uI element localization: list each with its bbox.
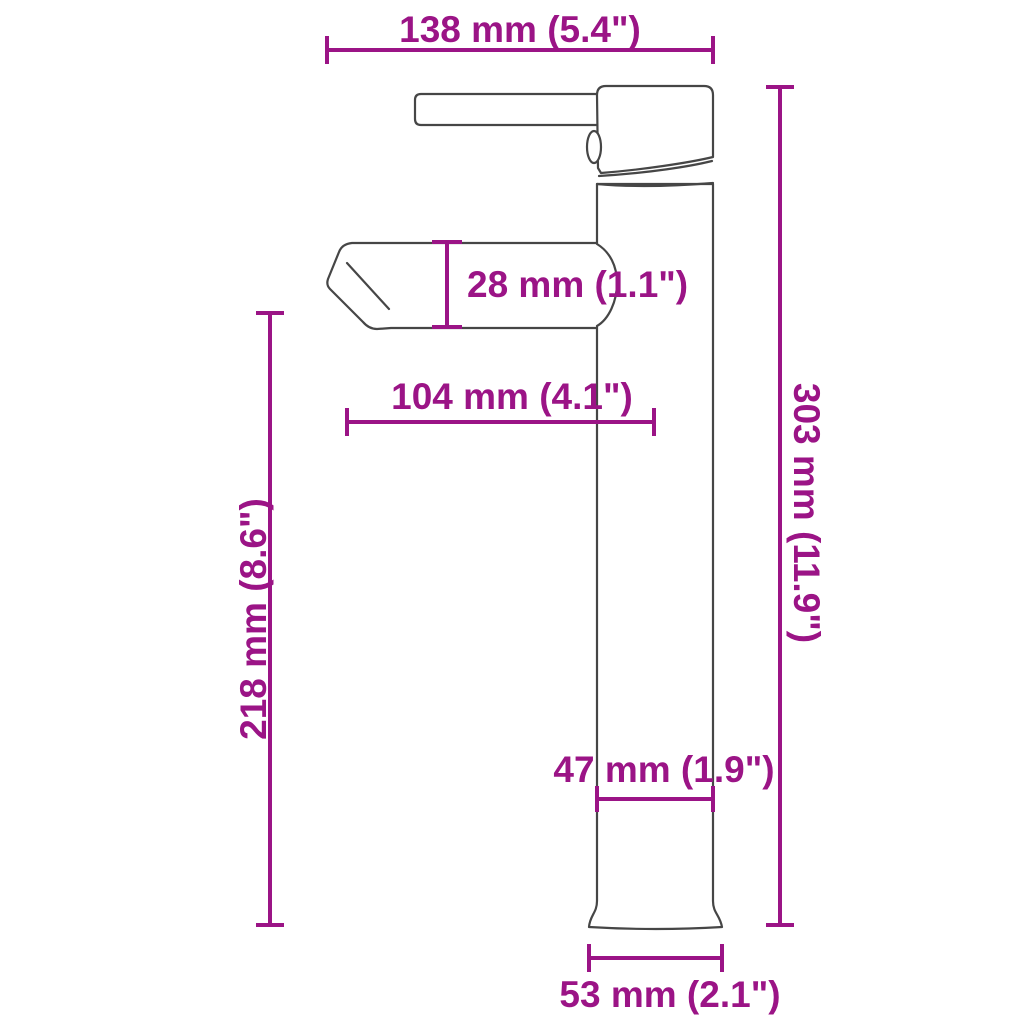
dimension-line: [589, 944, 722, 972]
aerator-seam-line: [347, 263, 389, 309]
dimension-spout-clearance: 218 mm (8.6"): [233, 313, 284, 925]
dimension-label-body-width: 47 mm (1.9"): [553, 749, 774, 790]
dimension-label-base-width: 53 mm (2.1"): [559, 974, 780, 1015]
dimension-label-spout-reach: 104 mm (4.1"): [391, 376, 633, 417]
faucet-dimension-diagram: 138 mm (5.4") 28 mm (1.1") 104 mm (4.1")…: [0, 0, 1024, 1024]
mixer-head: [597, 86, 713, 173]
dimension-spout-reach: 104 mm (4.1"): [347, 376, 654, 436]
set-screw-icon: [587, 131, 601, 163]
dimension-label-spout-clearance: 218 mm (8.6"): [233, 498, 274, 740]
dimension-spout-height: 28 mm (1.1"): [432, 242, 688, 327]
dimension-label-total-height: 303 mm (11.9"): [786, 383, 827, 643]
dimension-line: [432, 242, 462, 327]
dimension-label-overall-depth: 138 mm (5.4"): [399, 9, 641, 50]
handle-lever: [415, 94, 602, 125]
dimension-label-spout-height: 28 mm (1.1"): [467, 264, 688, 305]
dimension-body-width: 47 mm (1.9"): [553, 749, 774, 812]
faucet-outline: [327, 86, 722, 929]
dimension-overall-depth: 138 mm (5.4"): [327, 9, 713, 64]
dimension-annotations: 138 mm (5.4") 28 mm (1.1") 104 mm (4.1")…: [233, 9, 827, 1015]
dimension-total-height: 303 mm (11.9"): [766, 87, 827, 925]
dimension-base-width: 53 mm (2.1"): [559, 944, 780, 1015]
